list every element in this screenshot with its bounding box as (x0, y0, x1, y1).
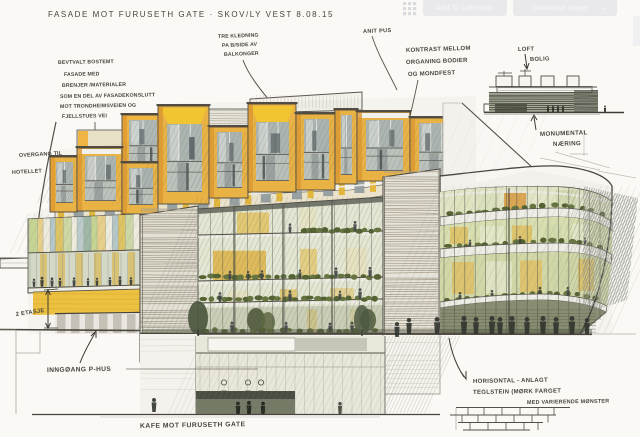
svg-text:BALKONGER: BALKONGER (224, 51, 259, 58)
svg-text:FASADE MED: FASADE MED (64, 71, 100, 78)
svg-text:NÆRING: NÆRING (553, 140, 581, 148)
svg-text:Add To Collection: Add To Collection (436, 5, 494, 12)
svg-text:LOFT: LOFT (518, 46, 535, 53)
svg-text:Download Image: Download Image (532, 5, 587, 12)
svg-text:FASADE MOT FURUSETH GATE ·: FASADE MOT FURUSETH GATE · SKOV/LY VEST … (48, 10, 334, 19)
svg-text:PA B/SIDE AV: PA B/SIDE AV (222, 42, 258, 49)
svg-text:BOLIG: BOLIG (530, 56, 550, 63)
svg-text:FJELLSTUES VEI: FJELLSTUES VEI (62, 113, 108, 120)
svg-text:ANIT PUS: ANIT PUS (363, 28, 392, 35)
svg-text:BEVTVALT BOSTEMT: BEVTVALT BOSTEMT (58, 59, 115, 66)
svg-text:INNGØANG P-HUS: INNGØANG P-HUS (47, 366, 112, 374)
svg-text:BRENJER /MATERIALER: BRENJER /MATERIALER (62, 82, 126, 89)
